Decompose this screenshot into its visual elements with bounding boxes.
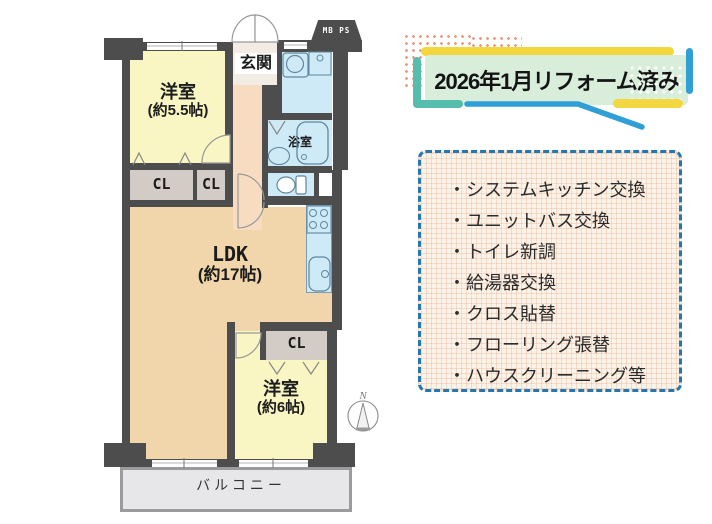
wall-segment — [333, 40, 348, 170]
wall-segment — [313, 443, 355, 467]
wall-segment — [225, 170, 233, 207]
washroom — [282, 52, 332, 115]
western-room-2-name: 洋室 — [235, 379, 327, 399]
badge-bottom-yellow-bar — [613, 99, 683, 108]
renovation-item: ・フローリング張替 — [448, 330, 669, 361]
wall-segment — [262, 166, 332, 173]
wall-segment — [314, 173, 319, 196]
western-room-1-size: (約5.5帖) — [128, 103, 228, 120]
renovation-list-box: ・システムキッチン交換・ユニットバス交換・トイレ新調・給湯器交換・クロス貼替・フ… — [418, 150, 682, 392]
renovation-item: ・ユニットバス交換 — [448, 206, 669, 237]
wall-segment — [104, 443, 146, 467]
ldk-size: (約17帖) — [150, 265, 310, 284]
mb-ps-label: MB PS — [323, 26, 351, 35]
ldk-name: LDK — [150, 243, 310, 265]
balcony-label: バルコニー — [146, 478, 336, 494]
closet-3-label: CL — [266, 335, 327, 352]
bathroom-label: 浴室 — [282, 136, 318, 149]
closet-1-label: CL — [130, 176, 193, 193]
renovation-item: ・クロス貼替 — [448, 299, 669, 330]
wall-segment — [262, 113, 332, 120]
renovation-item: ・給湯器交換 — [448, 268, 669, 299]
meter-box-block: MB PS — [311, 20, 362, 41]
closet-2-label: CL — [197, 176, 225, 193]
wall-segment — [262, 196, 342, 205]
svg-text:N: N — [358, 390, 367, 402]
badge-left-teal-bar — [413, 100, 463, 108]
window — [152, 460, 217, 467]
badge-right-blue-bar — [686, 48, 693, 94]
wall-segment — [260, 322, 337, 331]
wall-segment — [122, 163, 233, 170]
renovation-item: ・システムキッチン交換 — [448, 175, 669, 206]
western-room-1-name: 洋室 — [132, 82, 224, 102]
window — [239, 460, 308, 467]
hallway — [233, 85, 262, 230]
entrance-label: 玄関 — [235, 53, 277, 74]
wall-segment — [262, 118, 268, 208]
compass-icon: N — [348, 390, 378, 431]
western-room-2-size: (約6帖) — [231, 400, 331, 417]
window — [147, 43, 217, 50]
pipe-space — [319, 173, 332, 196]
floorplan-flyer: MB PS 洋室 (約5.5帖) 玄関 浴室 CL CL LDK (約17帖) … — [0, 0, 712, 524]
wall-segment — [332, 170, 342, 330]
window — [284, 42, 307, 49]
renovation-item: ・トイレ新調 — [448, 237, 669, 268]
wall-segment — [277, 42, 282, 85]
wall-segment — [227, 322, 235, 467]
wall-segment — [122, 200, 233, 207]
renovation-item: ・ハウスクリーニング等 — [448, 361, 669, 392]
toilet-room — [268, 173, 314, 196]
